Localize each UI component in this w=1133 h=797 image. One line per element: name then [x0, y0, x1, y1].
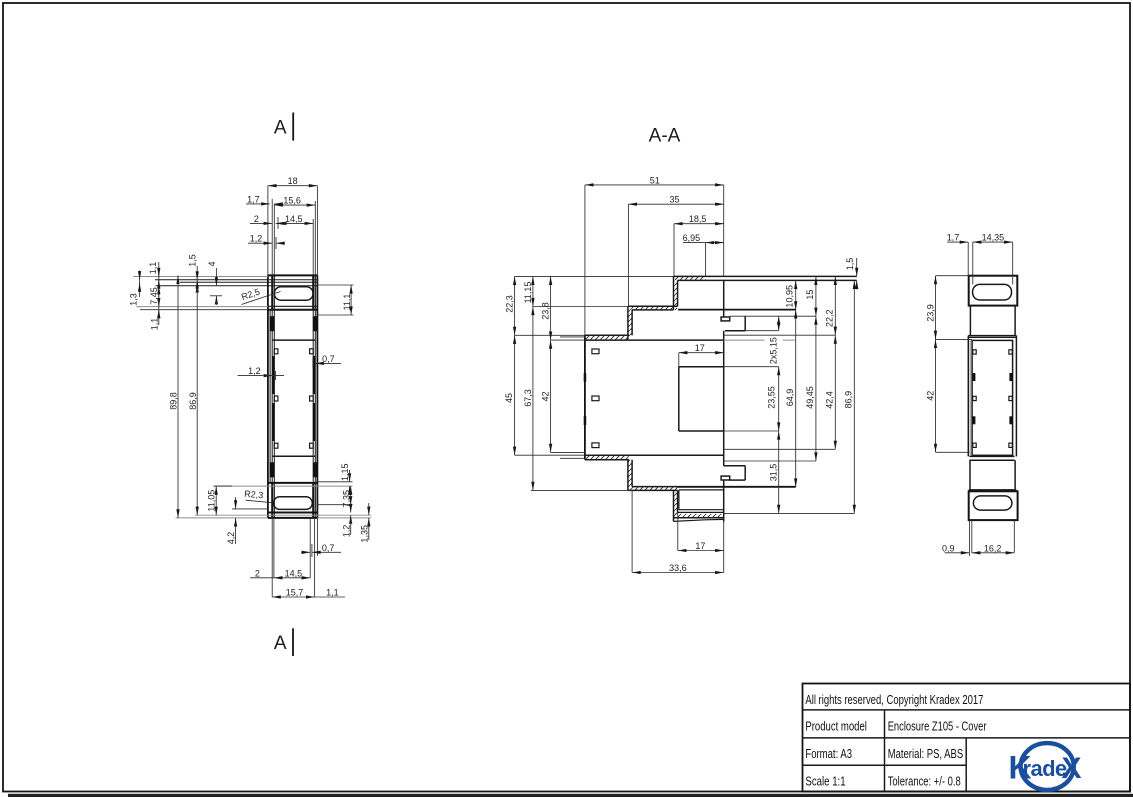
svg-text:A: A: [274, 633, 287, 654]
svg-text:15,7: 15,7: [286, 588, 304, 598]
svg-text:18,5: 18,5: [689, 214, 707, 224]
svg-text:42: 42: [541, 391, 551, 401]
svg-text:0,7: 0,7: [322, 543, 335, 553]
svg-text:1,5: 1,5: [845, 258, 855, 271]
svg-text:1,2: 1,2: [248, 366, 261, 376]
svg-text:1,7: 1,7: [247, 194, 260, 204]
svg-text:23,9: 23,9: [926, 304, 936, 322]
svg-text:1,35: 1,35: [359, 525, 369, 543]
svg-text:64,9: 64,9: [785, 389, 795, 407]
svg-text:16,2: 16,2: [984, 543, 1002, 553]
svg-text:A: A: [274, 118, 287, 139]
svg-text:Material: PS, ABS: Material: PS, ABS: [888, 746, 964, 761]
svg-text:1,1: 1,1: [326, 588, 339, 598]
svg-text:11,05: 11,05: [206, 490, 216, 512]
svg-text:1,5: 1,5: [188, 254, 198, 267]
svg-text:11,15: 11,15: [523, 282, 533, 304]
svg-text:A-A: A-A: [649, 125, 681, 146]
svg-text:45: 45: [504, 393, 514, 403]
svg-text:42: 42: [926, 391, 936, 401]
svg-text:11,1: 11,1: [342, 294, 352, 311]
svg-text:14,5: 14,5: [285, 214, 303, 224]
svg-text:67,3: 67,3: [523, 389, 533, 407]
svg-text:X: X: [1062, 752, 1082, 785]
svg-text:15,6: 15,6: [283, 196, 301, 206]
svg-text:18: 18: [288, 176, 298, 186]
svg-text:17: 17: [695, 541, 705, 551]
svg-text:0,9: 0,9: [942, 543, 955, 553]
svg-text:10,95: 10,95: [785, 285, 795, 308]
svg-text:All rights reserved, Copyright: All rights reserved, Copyright Kradex 20…: [805, 692, 983, 707]
svg-text:51: 51: [650, 175, 660, 185]
svg-text:4,2: 4,2: [226, 532, 236, 545]
svg-text:7,45: 7,45: [149, 287, 159, 305]
svg-text:23,8: 23,8: [541, 302, 551, 320]
svg-text:rade: rade: [1023, 756, 1067, 781]
svg-text:14,5: 14,5: [285, 568, 303, 578]
svg-text:Product model: Product model: [805, 719, 867, 734]
svg-text:1,2: 1,2: [250, 234, 263, 244]
svg-text:4: 4: [207, 261, 217, 266]
svg-text:15: 15: [805, 290, 815, 300]
svg-text:Scale 1:1: Scale 1:1: [805, 773, 845, 788]
svg-text:14,35: 14,35: [982, 233, 1005, 243]
svg-text:Tolerance: +/- 0.8: Tolerance: +/- 0.8: [888, 773, 961, 788]
svg-text:0,7: 0,7: [322, 354, 335, 364]
svg-text:2: 2: [254, 214, 259, 224]
svg-text:Enclosure Z105 - Cover: Enclosure Z105 - Cover: [888, 719, 987, 734]
svg-text:89,8: 89,8: [169, 392, 179, 410]
svg-text:1,1: 1,1: [150, 318, 160, 331]
svg-text:1,2: 1,2: [341, 525, 351, 538]
svg-text:35: 35: [669, 195, 679, 205]
svg-text:33,6: 33,6: [669, 563, 687, 573]
svg-text:1,15: 1,15: [340, 463, 350, 481]
svg-text:1,1: 1,1: [148, 262, 158, 275]
svg-text:2: 2: [255, 568, 260, 578]
svg-text:23,55: 23,55: [766, 386, 776, 409]
svg-text:86,9: 86,9: [188, 392, 198, 410]
svg-text:31,5: 31,5: [769, 464, 779, 482]
svg-text:R2,3: R2,3: [244, 489, 264, 501]
svg-text:22,3: 22,3: [505, 295, 515, 313]
svg-text:42,4: 42,4: [824, 391, 834, 409]
svg-text:1,7: 1,7: [947, 233, 960, 243]
svg-text:22,2: 22,2: [824, 310, 834, 328]
svg-text:17: 17: [695, 343, 705, 353]
svg-text:7,35: 7,35: [341, 490, 351, 508]
svg-text:1,3: 1,3: [129, 293, 139, 306]
svg-text:Format: A3: Format: A3: [805, 746, 852, 761]
svg-text:6,95: 6,95: [683, 233, 701, 243]
svg-text:86,9: 86,9: [843, 391, 853, 409]
svg-text:49,45: 49,45: [805, 386, 815, 409]
svg-text:2x5,15: 2x5,15: [769, 337, 779, 364]
